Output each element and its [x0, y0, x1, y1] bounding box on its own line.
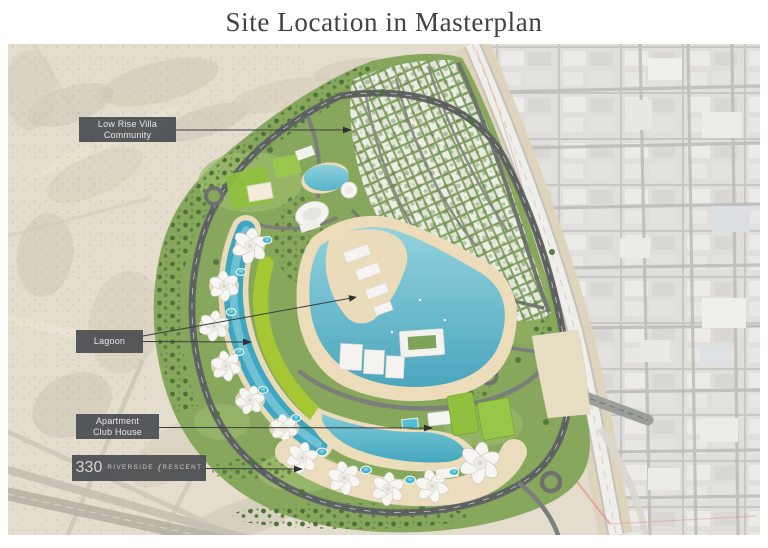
label-line: Low Rise Villa [79, 119, 176, 130]
label-line: Apartment [76, 416, 159, 427]
label-line: Lagoon [76, 336, 143, 347]
label-lagoon: Lagoon [76, 330, 143, 353]
brand-number: 330 [76, 463, 103, 474]
club-house-building [427, 411, 450, 426]
masterplan-page: Site Location in Masterplan [0, 0, 768, 548]
club-leader-line [159, 428, 425, 429]
label-apartment-club-house: Apartment Club House [76, 414, 159, 439]
label-line: Community [79, 130, 176, 141]
brand-word-riverside: RIVERSIDE [107, 463, 154, 474]
roundabout [542, 473, 560, 491]
lagoon-leader-line-1 [143, 342, 244, 343]
brand-word-crescent: RESCENT [162, 463, 202, 474]
label-low-rise-villa-community: Low Rise Villa Community [79, 117, 176, 142]
club-pool [402, 418, 419, 429]
label-330-riverside-crescent: 330 RIVERSIDE ( RESCENT [72, 455, 206, 481]
roundabout [206, 188, 222, 204]
brand-leader-line [206, 469, 295, 470]
sports-field [477, 398, 515, 441]
label-line: Club House [76, 427, 159, 438]
